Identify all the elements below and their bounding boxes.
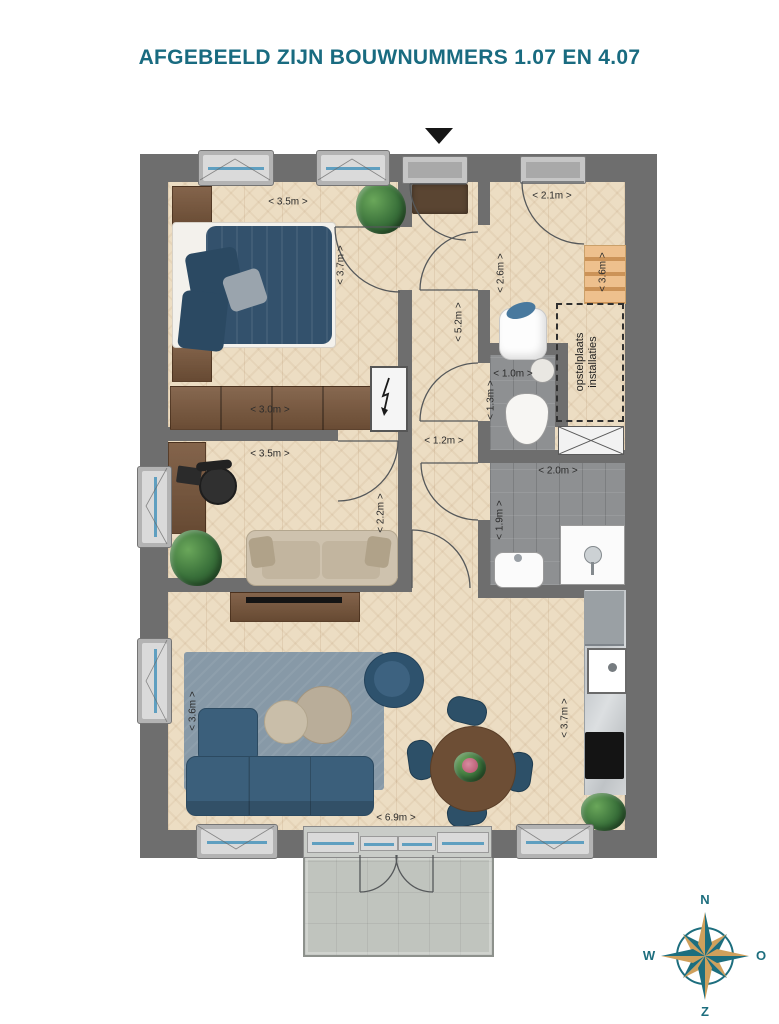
- table-flowers: [462, 758, 478, 773]
- dim-study-depth: < 2.2m >: [376, 493, 387, 532]
- window-glass: [442, 842, 484, 845]
- kitchen-sink: [587, 648, 627, 694]
- wall-study-right: [398, 427, 412, 592]
- window-glass: [154, 649, 157, 713]
- bedroom-window-1: [198, 150, 274, 186]
- dim-hallway-length: < 5.2m >: [454, 302, 465, 341]
- living-window-bottom: [196, 824, 278, 859]
- compass-label-north: N: [700, 892, 709, 907]
- compass-label-west: W: [643, 948, 656, 963]
- door-glass: [364, 843, 394, 846]
- dim-bedroom-width: < 3.5m >: [268, 197, 307, 208]
- dim-living-width: < 6.9m >: [376, 813, 415, 824]
- dim-bathroom-width: < 2.0m >: [538, 466, 577, 477]
- compass-label-south: Z: [701, 1004, 709, 1018]
- terrace-french-door-left: [360, 836, 398, 851]
- technical-area-label: opstelplaats installaties: [574, 307, 602, 417]
- lightning-bolt-icon: [372, 368, 402, 426]
- cabinet-cross-icon: [559, 427, 623, 454]
- bed-pillow-2: [177, 290, 229, 352]
- front-door: [402, 156, 468, 184]
- entrance-arrow-icon: [425, 128, 453, 144]
- study-sofa-pillow-left: [248, 535, 276, 568]
- door-glass: [402, 843, 432, 846]
- wall-hall-right-4: [478, 520, 490, 592]
- compass-cardinal-points: [661, 912, 749, 1000]
- kitchen-window-bottom: [516, 824, 594, 859]
- living-window-left: [137, 638, 172, 724]
- window-pane: [142, 471, 167, 543]
- bedroom-window-2: [316, 150, 390, 186]
- floor-plan-canvas: AFGEBEELD ZIJN BOUWNUMMERS 1.07 EN 4.07 …: [0, 0, 779, 1024]
- compass-rose: N W O Z: [640, 890, 770, 1018]
- terrace-door-unit: [303, 826, 492, 858]
- window-glass: [208, 167, 263, 170]
- terrace-sidelight-right: [437, 832, 489, 853]
- dim-stairs-length: < 3.6m >: [598, 252, 609, 291]
- tv: [246, 597, 342, 603]
- study-sofa-pillow-right: [364, 535, 392, 568]
- window-glass: [207, 841, 268, 844]
- dim-living-depth: < 3.6m >: [188, 691, 199, 730]
- dim-hallway-width: < 1.2m >: [424, 436, 463, 447]
- technical-area-label-line1: opstelplaats: [574, 307, 587, 417]
- hall-cabinet: [558, 426, 624, 455]
- dim-bathroom-depth: < 1.9m >: [495, 500, 506, 539]
- terrace: [303, 855, 494, 957]
- study-plant: [170, 530, 222, 586]
- wall-right: [625, 154, 657, 858]
- coffee-table-small: [264, 700, 308, 744]
- wall-hall-right-1: [478, 182, 490, 225]
- armchair-cushion: [374, 661, 410, 697]
- sofa-chaise: [198, 708, 258, 762]
- kitchen-tall-cabinet: [585, 591, 624, 646]
- page-title: AFGEBEELD ZIJN BOUWNUMMERS 1.07 EN 4.07: [0, 46, 779, 70]
- dim-entry-hall-width: < 2.1m >: [532, 191, 571, 202]
- dim-entry-hall-depth: < 2.6m >: [496, 253, 507, 292]
- cooktop: [585, 732, 624, 779]
- bedroom-plant: [356, 182, 406, 234]
- entry-hall-door-panel: [526, 162, 580, 178]
- window-pane: [203, 155, 269, 181]
- window-pane: [521, 829, 589, 854]
- sink-faucet: [514, 554, 522, 562]
- terrace-french-door-right: [398, 836, 436, 851]
- doormat: [412, 184, 468, 214]
- dim-kitchen-length: < 3.7m >: [560, 698, 571, 737]
- dim-study-width: < 3.5m >: [250, 449, 289, 460]
- meter-cupboard: [370, 366, 408, 432]
- toilet-sink: [530, 358, 555, 383]
- dim-toilet-depth: < 1.3m >: [486, 380, 497, 419]
- shower-stem: [591, 562, 594, 575]
- front-door-panel: [408, 162, 462, 178]
- technical-area-label-line2: installaties: [587, 307, 600, 417]
- window-pane: [321, 155, 385, 181]
- study-window: [137, 466, 172, 548]
- kitchen-faucet: [608, 663, 617, 672]
- terrace-sidelight-left: [307, 832, 359, 853]
- compass-label-east: O: [756, 948, 766, 963]
- window-glass: [326, 167, 380, 170]
- dim-toilet-width: < 1.0m >: [493, 369, 532, 380]
- window-pane: [142, 643, 167, 719]
- window-glass: [526, 841, 583, 844]
- window-pane: [201, 829, 273, 854]
- sofa-base: [186, 756, 374, 816]
- entry-hall-door: [520, 156, 586, 184]
- window-glass: [154, 477, 157, 538]
- office-chair: [199, 467, 237, 505]
- dim-bedroom-depth: < 3.7m >: [336, 245, 347, 284]
- window-glass: [312, 842, 354, 845]
- dim-wardrobe-width: < 3.0m >: [250, 405, 289, 416]
